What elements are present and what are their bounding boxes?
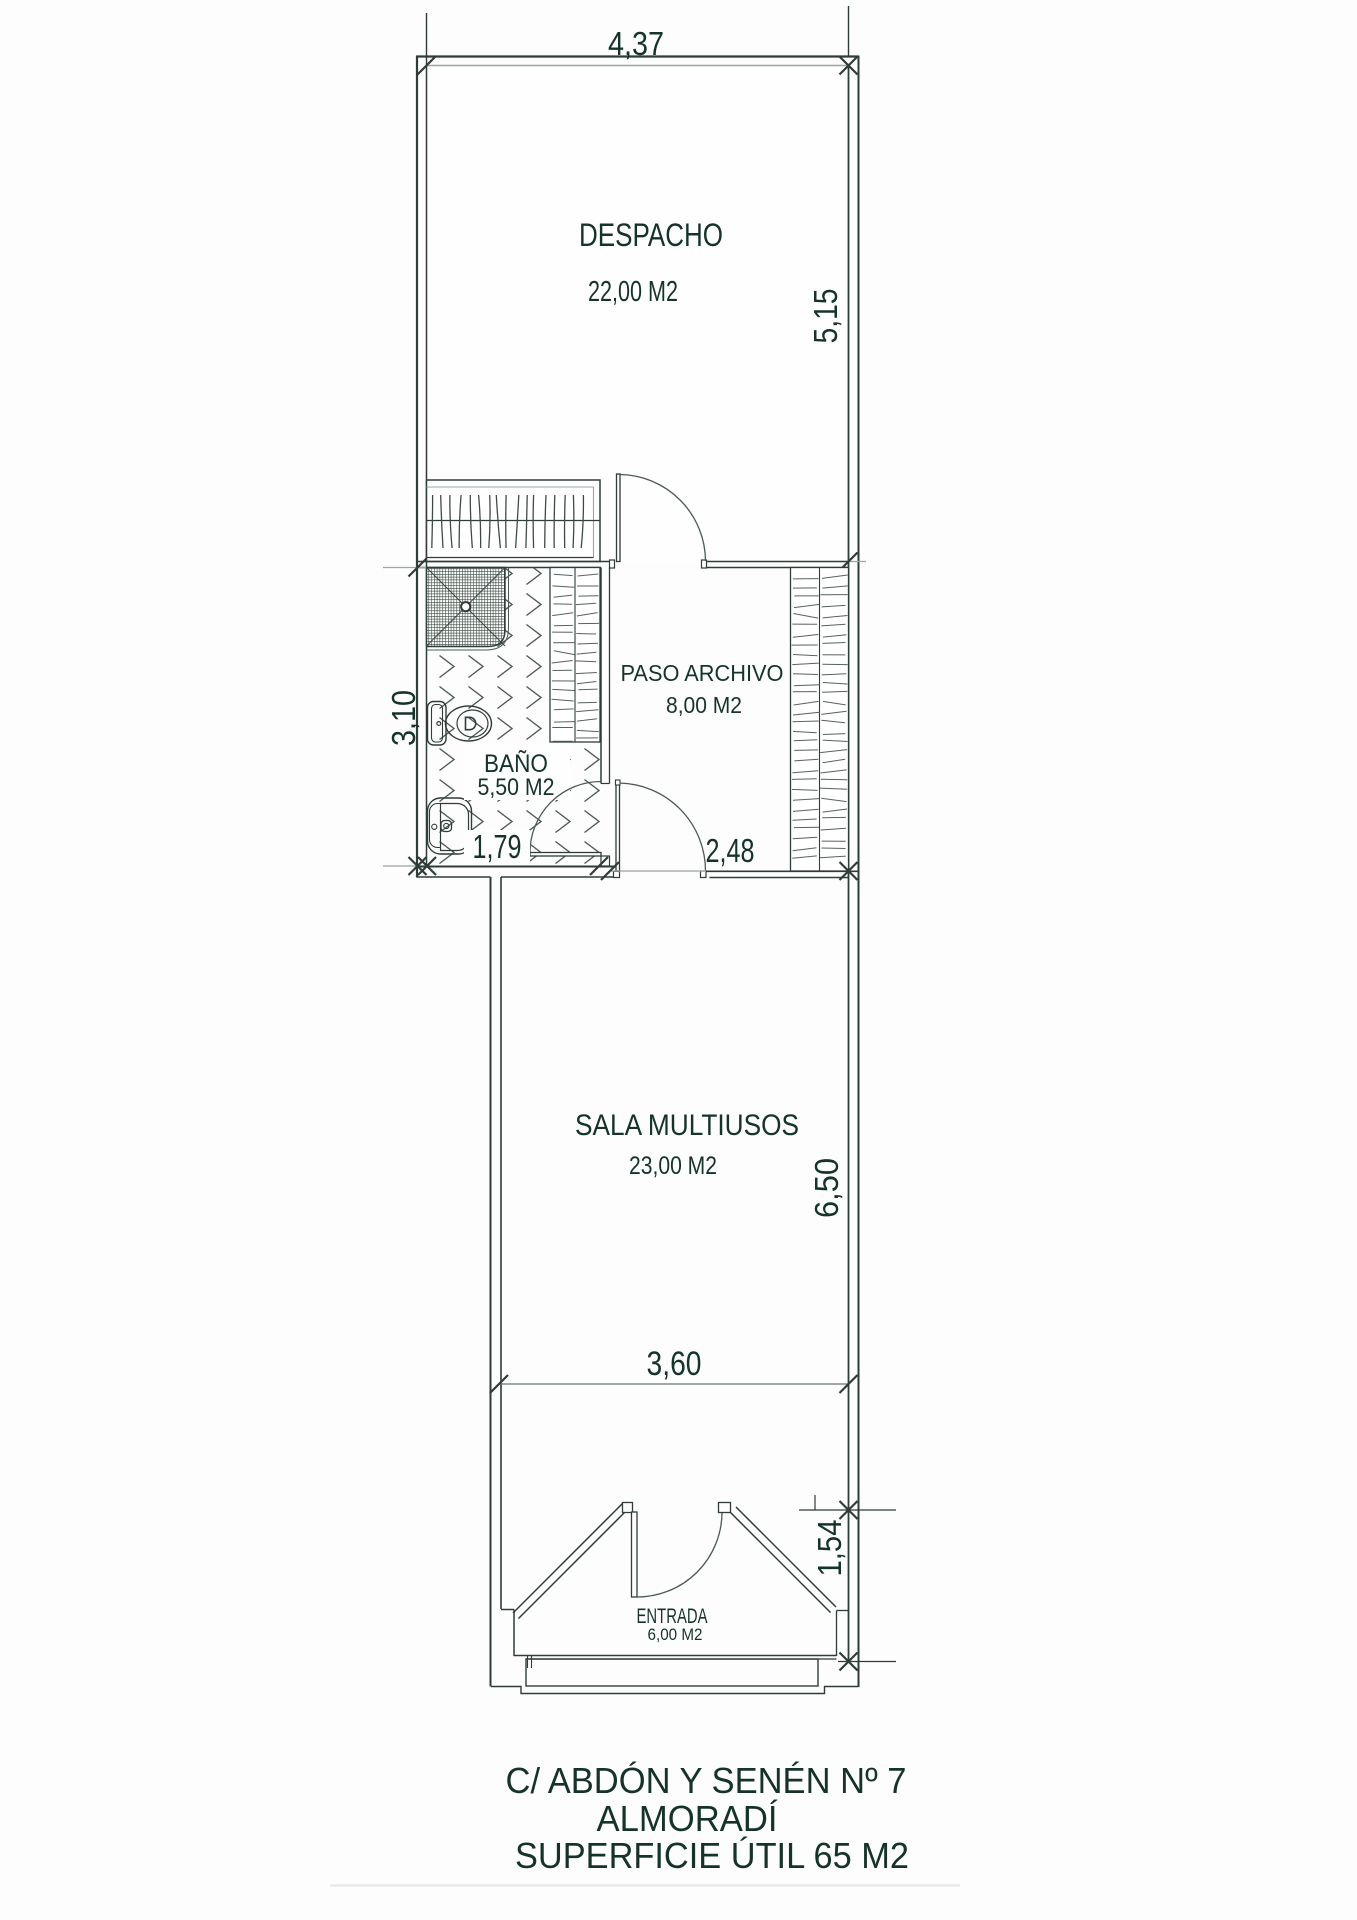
svg-text:23,00 M2: 23,00 M2 [629,1152,717,1180]
svg-text:6,00 M2: 6,00 M2 [648,1625,703,1644]
svg-text:22,00 M2: 22,00 M2 [588,276,678,308]
svg-text:6,50: 6,50 [808,1158,845,1218]
svg-text:SALA MULTIUSOS: SALA MULTIUSOS [575,1109,799,1142]
svg-text:5,50 M2: 5,50 M2 [478,774,555,801]
svg-text:SUPERFICIE ÚTIL 65 M2: SUPERFICIE ÚTIL 65 M2 [515,1835,909,1876]
svg-text:ALMORADÍ: ALMORADÍ [597,1798,778,1839]
svg-text:3,10: 3,10 [385,690,422,746]
svg-text:4,37: 4,37 [608,25,664,62]
svg-text:PASO ARCHIVO: PASO ARCHIVO [621,660,784,686]
svg-text:5,15: 5,15 [807,289,844,344]
svg-text:2,48: 2,48 [706,832,755,869]
svg-text:DESPACHO: DESPACHO [579,217,723,253]
svg-text:1,79: 1,79 [473,828,522,865]
svg-text:3,60: 3,60 [647,1345,702,1383]
svg-text:C/ ABDÓN Y SENÉN Nº 7: C/ ABDÓN Y SENÉN Nº 7 [506,1760,907,1801]
svg-text:8,00 M2: 8,00 M2 [666,692,742,718]
svg-text:1,54: 1,54 [811,1520,848,1577]
